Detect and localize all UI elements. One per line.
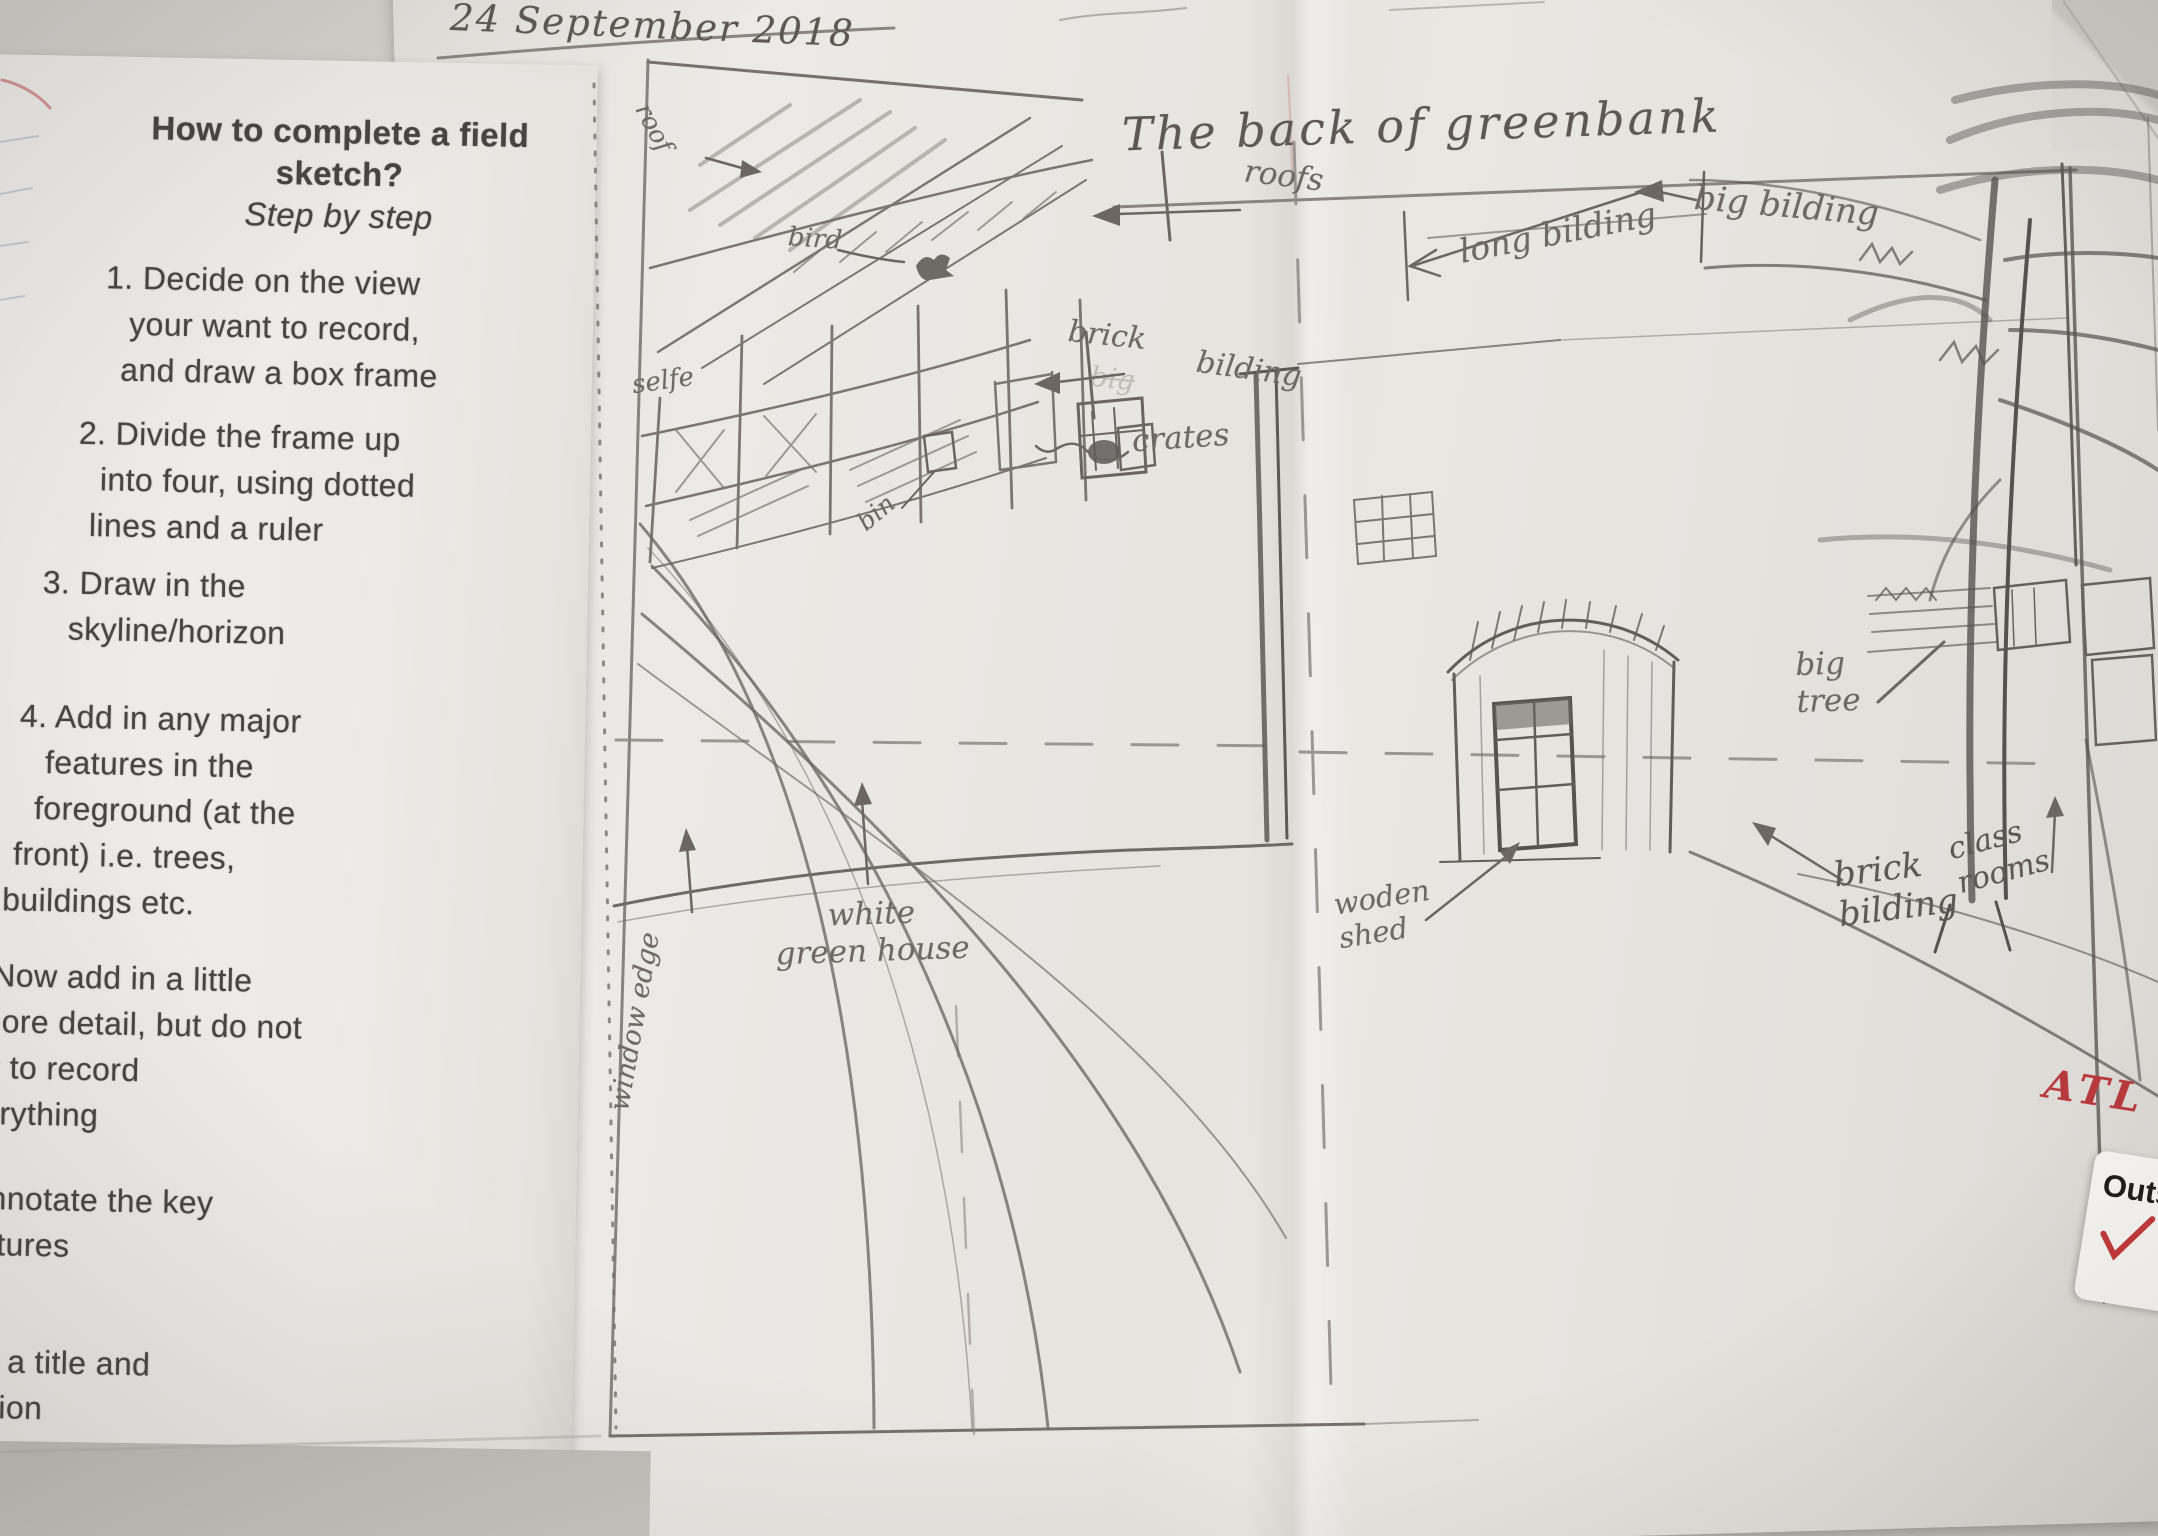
step-line: buildings etc.: [2, 876, 298, 928]
step-line: into four, using dotted: [100, 456, 416, 509]
step-1: 1. Decide on the view your want to recor…: [104, 254, 440, 399]
annotation-brick-building-lower: brick bilding: [1832, 841, 1961, 935]
step-line: foreground (at the: [34, 785, 300, 837]
annotation-crates: crates: [1131, 417, 1231, 460]
step-line: your want to record,: [129, 301, 439, 353]
step-line: 1. Decide on the view: [106, 254, 440, 307]
step-line: lines and a ruler: [89, 502, 415, 555]
instructions-heading: How to complete a field sketch? Step by …: [103, 106, 576, 242]
step-7: dd a title and cation: [0, 1337, 151, 1433]
step-4: 4. Add in any major features in the fore…: [16, 693, 302, 929]
annotation-white-greenhouse: white green house: [751, 892, 993, 973]
step-line: everything: [0, 1089, 301, 1142]
step-line: dd a title and: [0, 1337, 151, 1387]
step-line: more detail, but do not: [0, 998, 303, 1051]
step-line: skyline/horizon: [67, 606, 286, 657]
step-line: 2. Divide the frame up: [78, 410, 416, 463]
annotation-big-tree: big tree: [1795, 645, 1861, 720]
annotation-erased-big: big: [1088, 360, 1136, 398]
step-line: try to record: [0, 1043, 302, 1096]
notebook-photo: 24 September 2018 How to complete a fiel…: [0, 0, 2158, 1536]
step-line: 4. Add in any major: [20, 693, 302, 745]
step-line: 5. Now add in a little: [0, 951, 304, 1004]
instructions-panel: How to complete a field sketch? Step by …: [0, 0, 700, 1514]
annotation-bird: bird: [787, 222, 843, 256]
instructions-subheading: Step by step: [103, 190, 574, 242]
step-line: and draw a box frame: [120, 347, 438, 400]
red-tick-mark: [2093, 1205, 2158, 1268]
step-line: 3. Draw in the: [42, 559, 287, 610]
step-5: 5. Now add in a little more detail, but …: [0, 951, 304, 1142]
step-line: front) i.e. trees,: [13, 830, 299, 882]
step-line: cation: [0, 1383, 150, 1433]
step-line: eatures: [0, 1220, 213, 1271]
step-6: Annotate the key eatures: [0, 1175, 214, 1272]
step-3: 3. Draw in the skyline/horizon: [41, 559, 287, 656]
step-2: 2. Divide the frame up into four, using …: [77, 410, 417, 555]
step-line: Annotate the key: [0, 1175, 214, 1226]
step-line: features in the: [45, 739, 301, 790]
